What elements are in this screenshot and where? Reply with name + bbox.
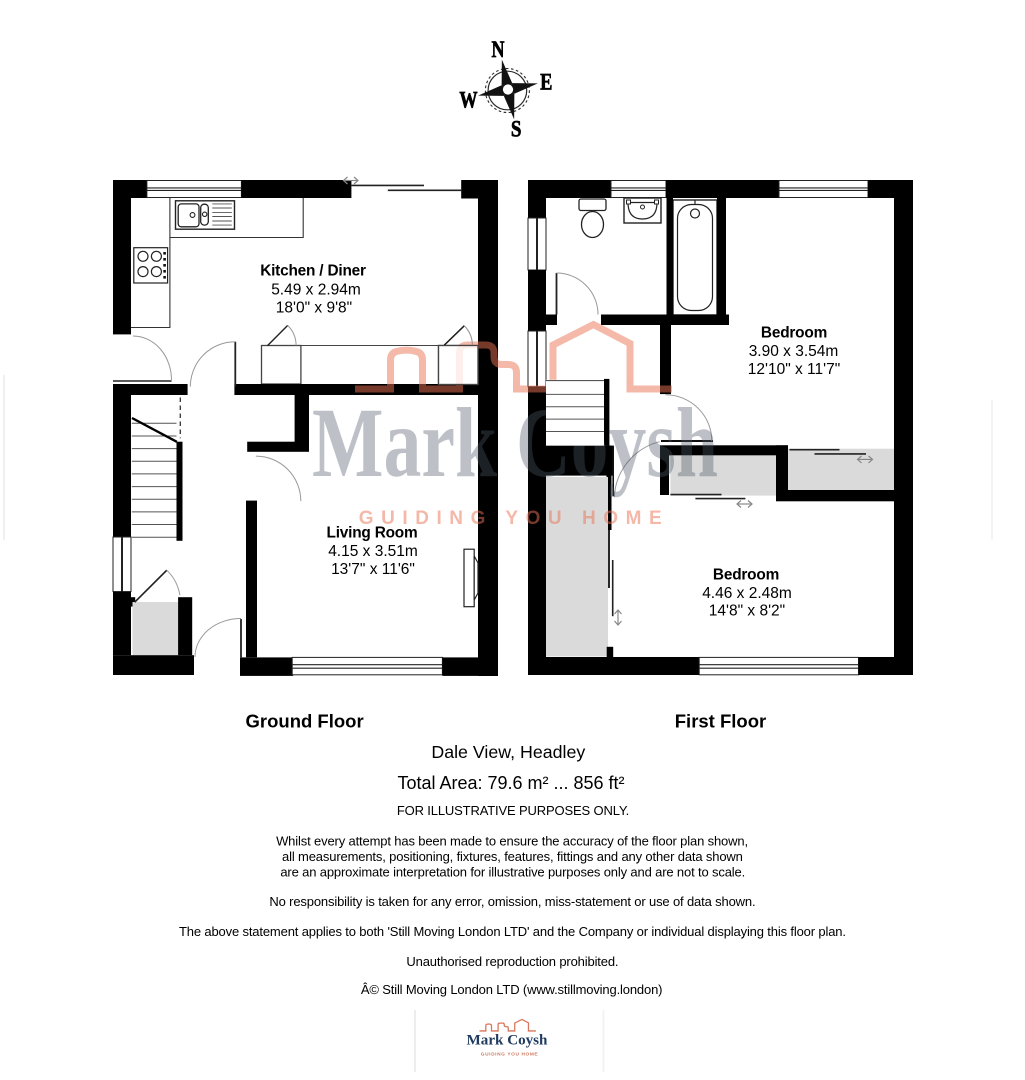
svg-text:GUIDING YOU HOME: GUIDING YOU HOME: [481, 1052, 539, 1058]
svg-text:13'7" x 11'6": 13'7" x 11'6": [331, 561, 415, 578]
svg-text:Â© Still Moving London LTD (ww: Â© Still Moving London LTD (www.stillmov…: [361, 982, 663, 997]
svg-text:12'10" x 11'7": 12'10" x 11'7": [748, 361, 840, 378]
svg-text:E: E: [540, 70, 552, 96]
svg-text:First Floor: First Floor: [675, 711, 766, 732]
svg-text:4.46 x 2.48m: 4.46 x 2.48m: [702, 585, 792, 602]
svg-text:3.90 x 3.54m: 3.90 x 3.54m: [749, 343, 839, 360]
svg-text:Mark Coysh: Mark Coysh: [312, 387, 718, 498]
svg-text:Total Area: 79.6 m² ... 856 ft: Total Area: 79.6 m² ... 856 ft²: [397, 773, 624, 793]
svg-text:are an approximate interpretat: are an approximate interpretation for il…: [280, 865, 745, 880]
svg-text:Unauthorised reproduction proh: Unauthorised reproduction prohibited.: [406, 954, 618, 969]
svg-text:W: W: [459, 87, 478, 113]
svg-text:The above statement applies to: The above statement applies to both 'Sti…: [179, 924, 846, 939]
svg-text:14'8" x 8'2": 14'8" x 8'2": [709, 603, 785, 620]
svg-text:No responsibility is taken for: No responsibility is taken for any error…: [269, 894, 755, 909]
svg-text:FOR ILLUSTRATIVE PURPOSES ONLY: FOR ILLUSTRATIVE PURPOSES ONLY.: [397, 803, 629, 818]
svg-text:all measurements, positioning,: all measurements, positioning, fixtures,…: [282, 849, 743, 864]
svg-text:Kitchen / Diner: Kitchen / Diner: [260, 263, 366, 280]
svg-text:GUIDING YOU HOME: GUIDING YOU HOME: [359, 508, 669, 529]
svg-text:18'0" x 9'8": 18'0" x 9'8": [276, 300, 352, 317]
svg-text:Mark Coysh: Mark Coysh: [467, 1032, 549, 1048]
svg-text:S: S: [511, 117, 522, 143]
svg-text:5.49 x 2.94m: 5.49 x 2.94m: [271, 281, 361, 298]
svg-text:Dale View, Headley: Dale View, Headley: [431, 742, 585, 762]
svg-text:N: N: [492, 37, 505, 63]
svg-text:Bedroom: Bedroom: [713, 567, 779, 584]
svg-text:Bedroom: Bedroom: [761, 325, 827, 342]
svg-text:Ground Floor: Ground Floor: [246, 711, 364, 732]
svg-text:4.15 x 3.51m: 4.15 x 3.51m: [328, 543, 418, 560]
svg-text:Whilst every attempt has been: Whilst every attempt has been made to en…: [276, 834, 748, 849]
